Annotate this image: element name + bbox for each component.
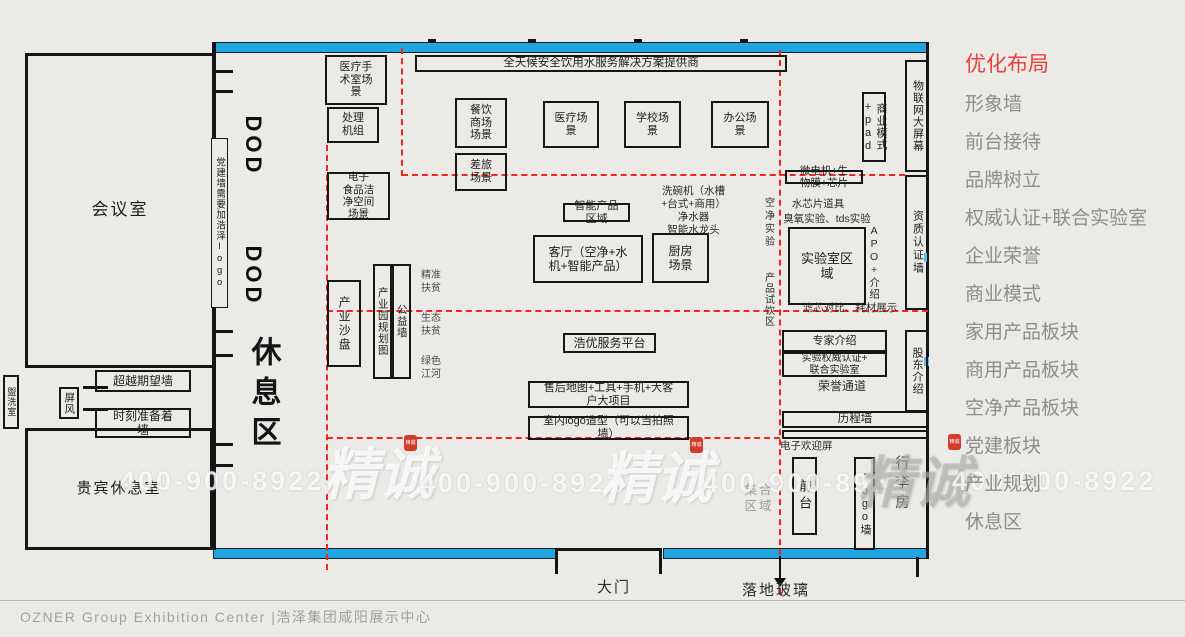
wall-exceed-expectation: 超越期望墙: [95, 370, 191, 392]
door-hatch: [216, 90, 233, 93]
scene-catering-mall: 餐饮 商场 场景: [455, 98, 507, 148]
unit-processing: 处理 机组: [327, 107, 379, 143]
wall-bottom-blue-right: [663, 548, 928, 559]
dod-cabinet-bottom: DOD: [240, 237, 266, 315]
zone-aftersale-label: 售后地图+工具+手机+大客 户大项目: [544, 382, 673, 408]
scene-office: 办公场 景: [711, 101, 769, 148]
exhibit-micromotor-label: 微电机+生 物膜+芯片: [800, 165, 848, 190]
wall-always-ready-label: 时刻准备着 墙: [113, 409, 173, 437]
scene-living-room: 客厅（空净+水 机+智能产品）: [533, 235, 643, 283]
scene-e-food-clean: 电子 食品洁 净空间 场景: [327, 172, 390, 220]
legend-item-image-wall: 形象墙: [965, 86, 1185, 124]
note-dishwasher: 洗碗机（水槽 +台式+商用） 净水器 智能水龙头: [645, 185, 742, 238]
board-cert-wall-label: 资质认证墙: [911, 210, 924, 275]
room-washroom-label: 盥洗室: [6, 387, 17, 417]
column-mark: [634, 39, 642, 43]
board-iot-screen: 物联网大屏幕: [905, 60, 929, 172]
gate-jamb-right: [659, 548, 662, 574]
legend-item-business-model: 商业模式: [965, 276, 1185, 314]
note-welcome-screen: 电子欢迎屏: [780, 440, 846, 453]
legend-item-party-building: 党建板块: [965, 428, 1185, 466]
board-auth-lab: 实验权威认证+ 联合实验室: [782, 352, 887, 377]
legend-item-honor: 企业荣誉: [965, 238, 1185, 276]
note-honor-channel: 荣誉通道: [806, 379, 878, 394]
party-wall-note: 党建墙需要加浩泽logo: [211, 138, 228, 308]
zone-rest-area: 休息区: [244, 336, 282, 456]
board-iot-screen-label: 物联网大屏幕: [911, 80, 924, 152]
zone-laboratory: 实验室区 域: [788, 227, 866, 305]
scene-medical-label: 医疗场 景: [555, 112, 588, 138]
history-wall-label: 历程墙: [838, 413, 873, 427]
unit-processing-label: 处理 机组: [342, 112, 364, 138]
legend-item-certification: 权威认证+联合实验室: [965, 200, 1185, 238]
wall-bottom-blue-left: [213, 548, 556, 559]
watermark-seal: 精诚: [948, 434, 961, 450]
legend-item-air-products: 空净产品板块: [965, 390, 1185, 428]
wall-top-blue: [213, 42, 928, 53]
note-tasting-zone: 产品试饮区: [761, 272, 774, 327]
column-mark: [428, 39, 436, 43]
gate-jamb-left: [555, 548, 558, 574]
door-hatch: [216, 330, 233, 333]
note-precise-poverty: 精准 扶贫: [417, 270, 445, 295]
screen-partition-label: 屏风: [63, 392, 75, 415]
watermark-phone: 400-900-8922: [120, 466, 324, 497]
board-expert-intro: 专家介绍: [782, 330, 887, 352]
glass-arrow-line: [779, 556, 781, 578]
watermark-brand: 精诚: [322, 430, 434, 511]
wall-always-ready: 时刻准备着 墙: [95, 408, 191, 438]
scene-e-food-clean-label: 电子 食品洁 净空间 场景: [343, 171, 375, 221]
scene-school: 学校场 景: [624, 101, 681, 148]
legend-item-brand: 品牌树立: [965, 162, 1185, 200]
scene-medical-surgery: 医疗手 术室场 景: [325, 55, 387, 105]
board-shareholder: 股东介绍: [905, 330, 928, 412]
footer-divider: [0, 600, 1185, 601]
note-filter-compare: 滤芯对比、耗材展示: [788, 302, 912, 315]
welfare-wall: 公益墙: [392, 264, 411, 379]
zone-laboratory-label: 实验室区 域: [801, 251, 853, 282]
exhibit-micromotor: 微电机+生 物膜+芯片: [785, 170, 863, 184]
industry-sandbox-label: 产业沙盘: [337, 296, 351, 352]
industrial-park-plan-label: 产业园规划图: [376, 287, 388, 356]
slogan-banner-label: 全天候安全饮用水服务解决方案提供商: [503, 57, 699, 71]
exhibition-floorplan-slide: 会议室 贵宾休息室 盥洗室 屏风 超越期望墙 时刻准备着 墙 党建墙需要加浩泽l…: [0, 0, 1185, 637]
note-air-experiment: 空净实验: [761, 197, 774, 249]
zone-business-pad-label: 商业模式+pad: [861, 94, 887, 160]
legend-item-industry-planning: 产业规划: [965, 466, 1185, 504]
zone-aftersale: 售后地图+工具+手机+大客 户大项目: [528, 381, 689, 408]
legend-item-home-products: 家用产品板块: [965, 314, 1185, 352]
door-hatch: [216, 354, 233, 357]
scene-school-label: 学校场 景: [636, 112, 669, 138]
history-wall: 历程墙: [782, 411, 928, 428]
scene-medical-surgery-label: 医疗手 术室场 景: [340, 61, 373, 100]
platform-haoyou-label: 浩优服务平台: [573, 336, 645, 350]
watermark-seal: 精诚: [404, 435, 417, 451]
legend-item-rest-area: 休息区: [965, 504, 1185, 542]
footer-caption: OZNER Group Exhibition Center |浩泽集团咸阳展示中…: [20, 607, 431, 627]
slogan-banner: 全天候安全饮用水服务解决方案提供商: [415, 55, 787, 72]
label-gate: 大门: [588, 579, 640, 598]
screen-partition: 屏风: [59, 387, 79, 419]
board-auth-lab-label: 实验权威认证+ 联合实验室: [802, 353, 868, 377]
scene-travel-label: 差旅 场景: [470, 159, 492, 185]
label-floor-glass: 落地玻璃: [733, 582, 819, 601]
zone-smart-products-label: 智能产品 区域: [575, 200, 619, 226]
legend-item-front-desk: 前台接待: [965, 124, 1185, 162]
gate-opening-line: [556, 548, 660, 551]
board-shareholder-label: 股东介绍: [910, 347, 923, 395]
legend-list: 形象墙 前台接待 品牌树立 权威认证+联合实验室 企业荣誉 商业模式 家用产品板…: [965, 86, 1185, 542]
board-expert-intro-label: 专家介绍: [813, 335, 857, 348]
note-water-chip: 水芯片道具: [782, 198, 854, 211]
door-hatch: [216, 443, 233, 446]
dod-cabinet-top: DOD: [240, 107, 266, 185]
note-ozone-tds: 臭氧实验、tds实验: [775, 213, 879, 226]
wall-exceed-expectation-label: 超越期望墙: [113, 374, 173, 388]
scene-catering-mall-label: 餐饮 商场 场景: [470, 104, 492, 143]
note-eco-poverty: 生态 扶贫: [417, 313, 445, 338]
wall-tick-right-bottom: [916, 557, 919, 577]
column-mark: [528, 39, 536, 43]
industry-sandbox: 产业沙盘: [327, 280, 361, 367]
industrial-park-plan: 产业园规划图: [373, 264, 392, 379]
note-apo-intro: APO+介绍: [867, 225, 880, 300]
room-meeting-label: 会议室: [92, 200, 149, 220]
welfare-wall-label: 公益墙: [395, 304, 407, 339]
legend-title: 优化布局: [965, 48, 1049, 78]
board-cert-wall: 资质认证墙: [905, 175, 929, 310]
room-washroom: 盥洗室: [3, 375, 19, 429]
door-hatch: [216, 70, 233, 73]
party-wall-note-label: 党建墙需要加浩泽logo: [214, 157, 225, 289]
room-meeting: 会议室: [25, 53, 215, 368]
scene-travel: 差旅 场景: [455, 153, 507, 191]
platform-haoyou: 浩优服务平台: [563, 333, 656, 353]
note-green-river: 绿色 江河: [417, 356, 445, 381]
zone-smart-products: 智能产品 区域: [563, 203, 630, 222]
watermark-phone: 400-900-8922: [420, 468, 624, 499]
scene-office-label: 办公场 景: [724, 112, 757, 138]
scene-living-room-label: 客厅（空净+水 机+智能产品）: [548, 245, 627, 273]
watermark-seal: 精诚: [690, 437, 703, 453]
legend-item-commercial-products: 商用产品板块: [965, 352, 1185, 390]
scene-kitchen: 厨房 场景: [652, 233, 709, 283]
zone-line-vertical-mid: [401, 48, 403, 176]
scene-kitchen-label: 厨房 场景: [668, 244, 692, 272]
scene-medical: 医疗场 景: [543, 101, 599, 148]
column-mark: [740, 39, 748, 43]
zone-business-pad: 商业模式+pad: [862, 92, 886, 162]
